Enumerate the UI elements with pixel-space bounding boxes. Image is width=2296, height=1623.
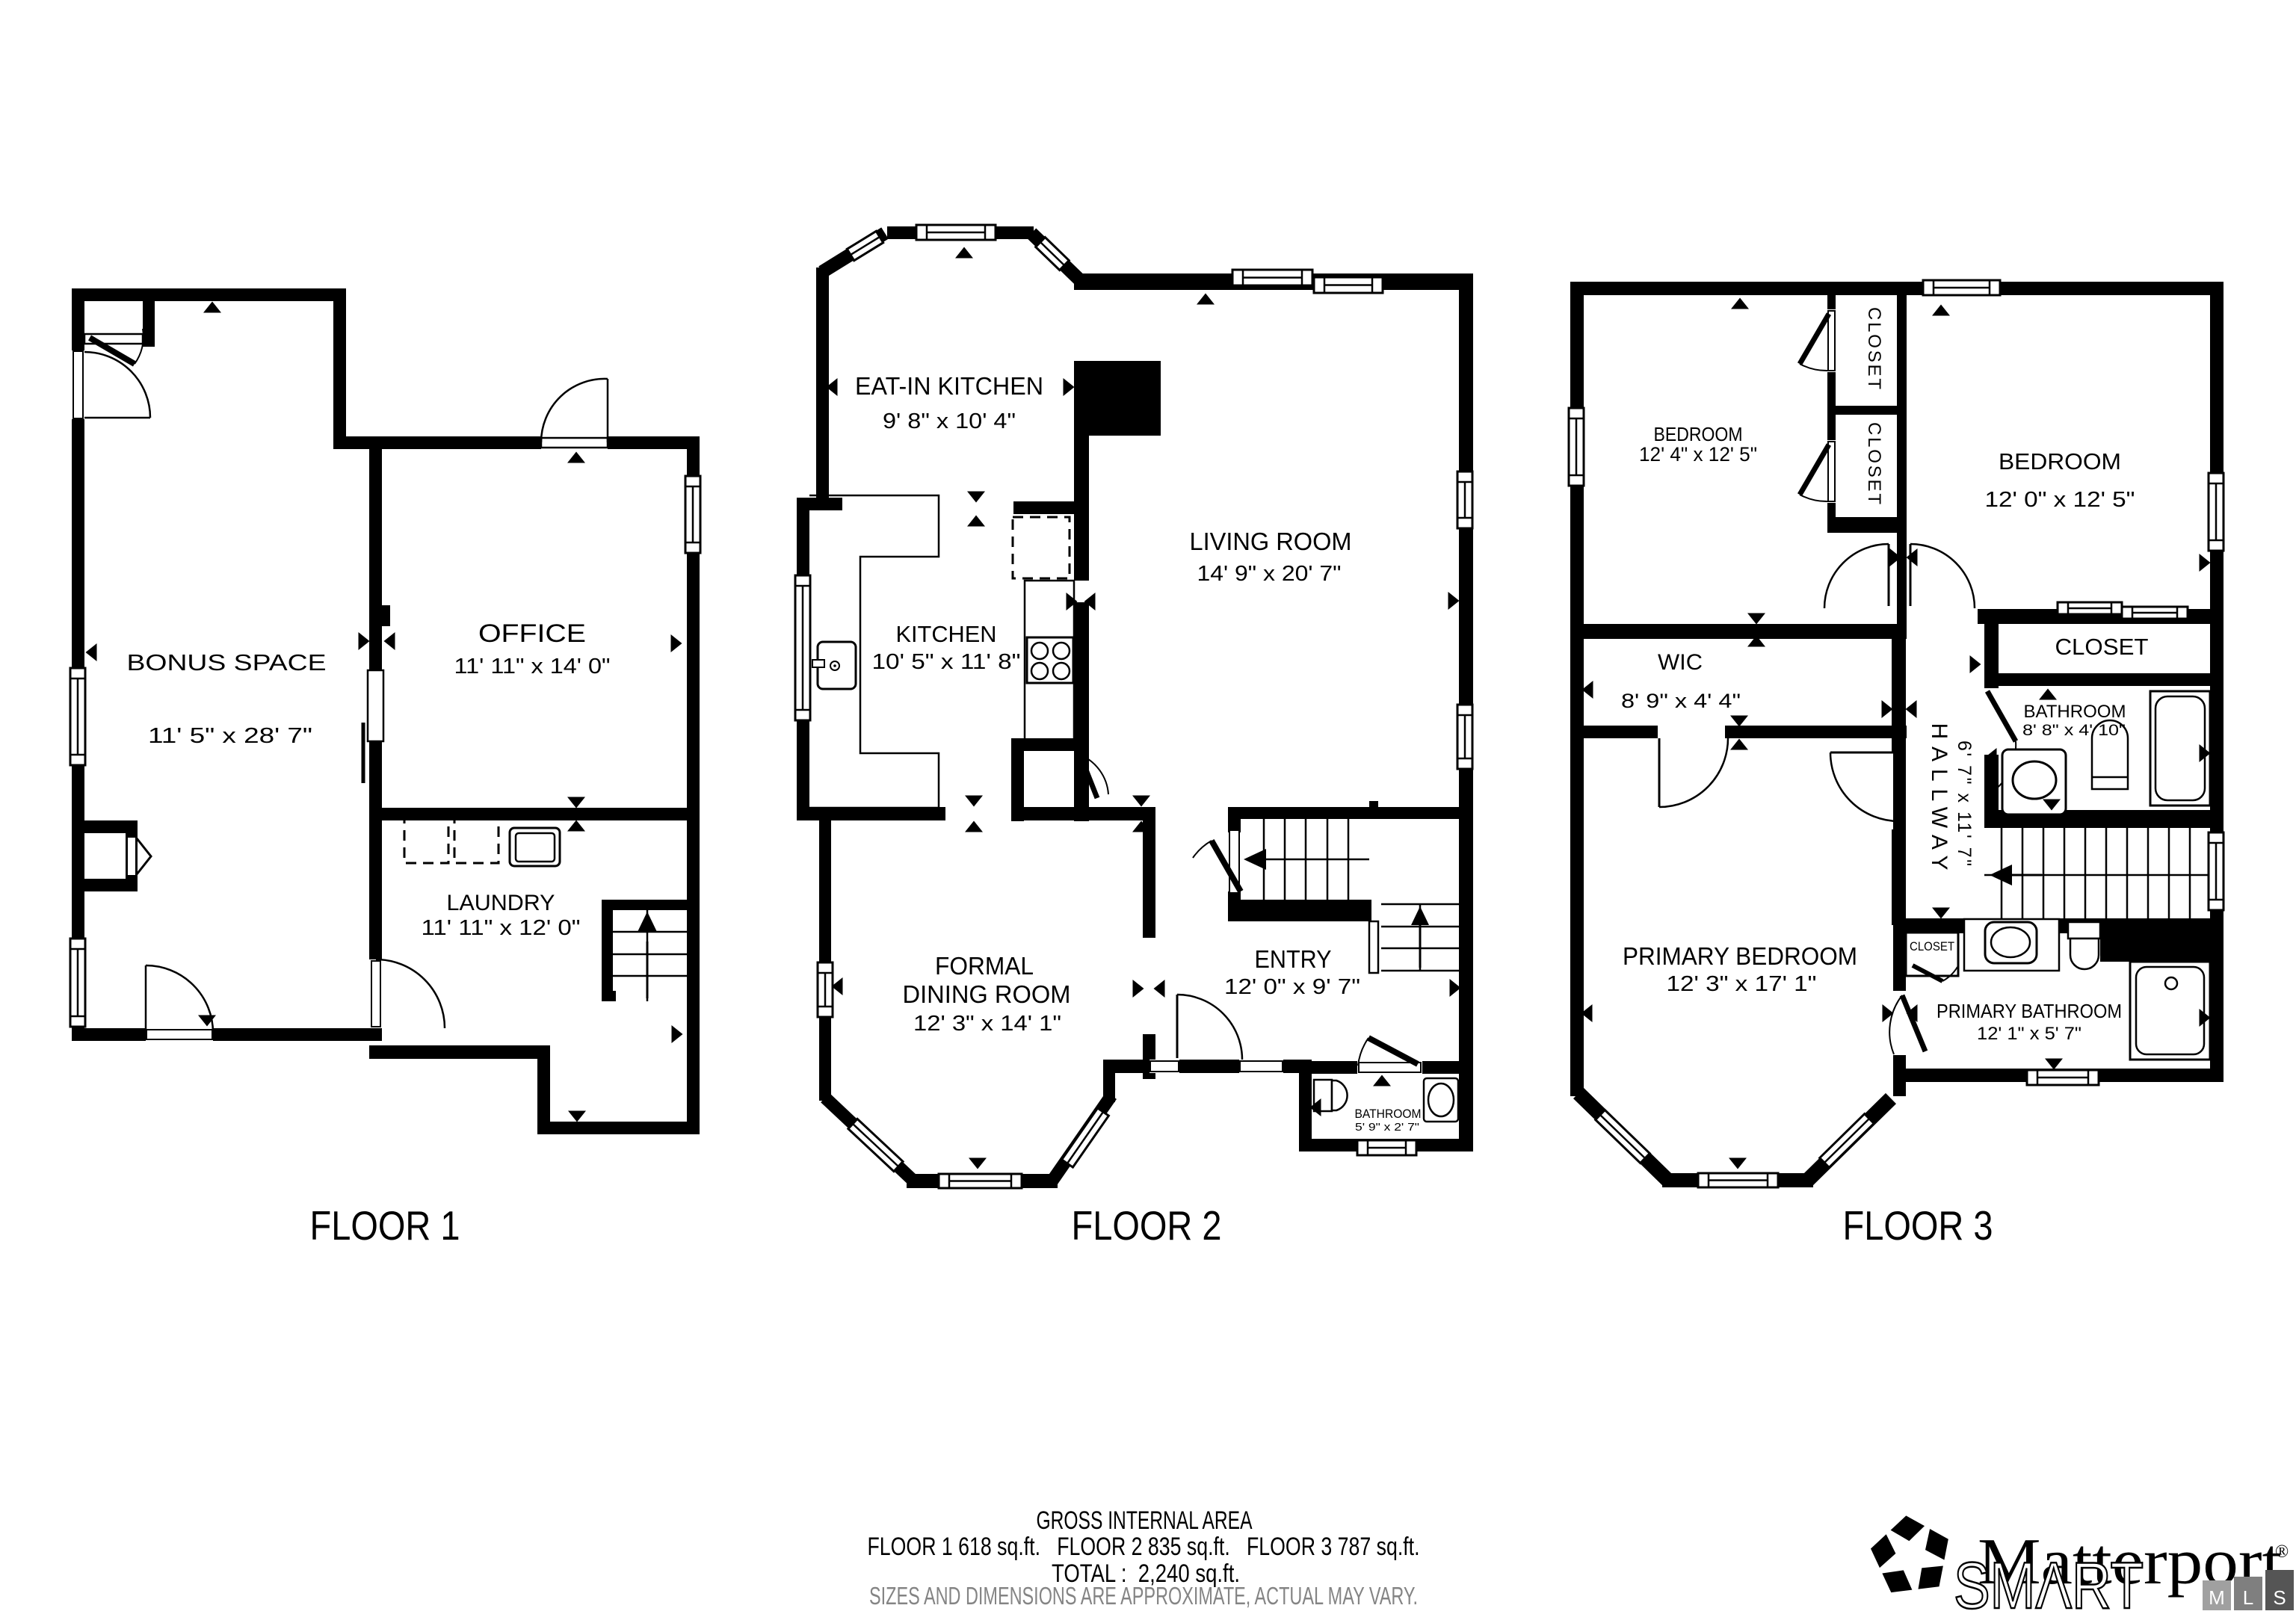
svg-text:®: ® <box>2275 1542 2289 1562</box>
svg-text:L: L <box>2243 1586 2253 1609</box>
svg-text:SMΛRT: SMΛRT <box>1954 1548 2144 1622</box>
svg-text:FLOOR 1 618 sq.ft. FLOOR 2 8: FLOOR 1 618 sq.ft. FLOOR 2 835 sq.ft. FL… <box>868 1533 1420 1561</box>
svg-text:DINING ROOM: DINING ROOM <box>903 980 1071 1008</box>
svg-text:FLOOR 3: FLOOR 3 <box>1843 1202 1993 1249</box>
svg-text:BATHROOM: BATHROOM <box>2024 702 2126 722</box>
svg-text:12' 0" x 12' 5": 12' 0" x 12' 5" <box>1985 488 2135 512</box>
svg-text:8' 8" x 4' 10": 8' 8" x 4' 10" <box>2022 722 2126 739</box>
svg-text:BATHROOM: BATHROOM <box>1355 1107 1422 1121</box>
svg-text:BEDROOM: BEDROOM <box>1654 423 1743 445</box>
svg-text:CLOSET: CLOSET <box>1910 939 1954 953</box>
svg-text:12' 3" x 14' 1": 12' 3" x 14' 1" <box>913 1012 1061 1036</box>
svg-text:11' 11" x 12' 0": 11' 11" x 12' 0" <box>422 916 581 940</box>
svg-text:GROSS INTERNAL AREA: GROSS INTERNAL AREA <box>1037 1506 1253 1535</box>
svg-text:PRIMARY BATHROOM: PRIMARY BATHROOM <box>1937 1000 2122 1022</box>
svg-text:S: S <box>2273 1586 2286 1609</box>
svg-text:CLOSET: CLOSET <box>2055 634 2149 660</box>
svg-text:BONUS SPACE: BONUS SPACE <box>127 649 327 676</box>
svg-text:FORMAL: FORMAL <box>935 952 1034 980</box>
svg-text:FLOOR 2: FLOOR 2 <box>1072 1202 1222 1249</box>
svg-text:KITCHEN: KITCHEN <box>896 621 997 647</box>
svg-text:FLOOR 1: FLOOR 1 <box>310 1202 460 1249</box>
svg-text:5' 9" x 2' 7": 5' 9" x 2' 7" <box>1355 1121 1419 1134</box>
svg-text:12' 4" x 12' 5": 12' 4" x 12' 5" <box>1639 443 1757 466</box>
svg-text:SIZES AND DIMENSIONS ARE APPRO: SIZES AND DIMENSIONS ARE APPROXIMATE, AC… <box>869 1582 1418 1610</box>
svg-text:WIC: WIC <box>1658 650 1703 675</box>
svg-text:12' 3" x 17' 1": 12' 3" x 17' 1" <box>1667 972 1817 996</box>
svg-text:LAUNDRY: LAUNDRY <box>447 891 555 915</box>
svg-text:LIVING ROOM: LIVING ROOM <box>1190 528 1352 555</box>
svg-text:12' 0" x 9' 7": 12' 0" x 9' 7" <box>1224 975 1360 999</box>
svg-text:BEDROOM: BEDROOM <box>1999 448 2121 474</box>
svg-text:14' 9" x 20' 7": 14' 9" x 20' 7" <box>1197 562 1342 586</box>
svg-text:OFFICE: OFFICE <box>478 619 586 648</box>
svg-text:ENTRY: ENTRY <box>1255 945 1332 973</box>
svg-text:PRIMARY BEDROOM: PRIMARY BEDROOM <box>1623 942 1857 970</box>
svg-text:10' 5" x 11' 8": 10' 5" x 11' 8" <box>872 650 1021 674</box>
svg-text:EAT-IN KITCHEN: EAT-IN KITCHEN <box>855 372 1043 400</box>
svg-text:11' 5" x 28' 7": 11' 5" x 28' 7" <box>148 724 312 748</box>
svg-text:12' 1" x 5' 7": 12' 1" x 5' 7" <box>1977 1024 2081 1044</box>
svg-text:8' 9" x 4' 4": 8' 9" x 4' 4" <box>1621 690 1741 712</box>
svg-text:11' 11" x 14' 0": 11' 11" x 14' 0" <box>454 655 611 678</box>
svg-text:M: M <box>2209 1586 2225 1609</box>
svg-text:9' 8" x 10' 4": 9' 8" x 10' 4" <box>883 409 1016 433</box>
